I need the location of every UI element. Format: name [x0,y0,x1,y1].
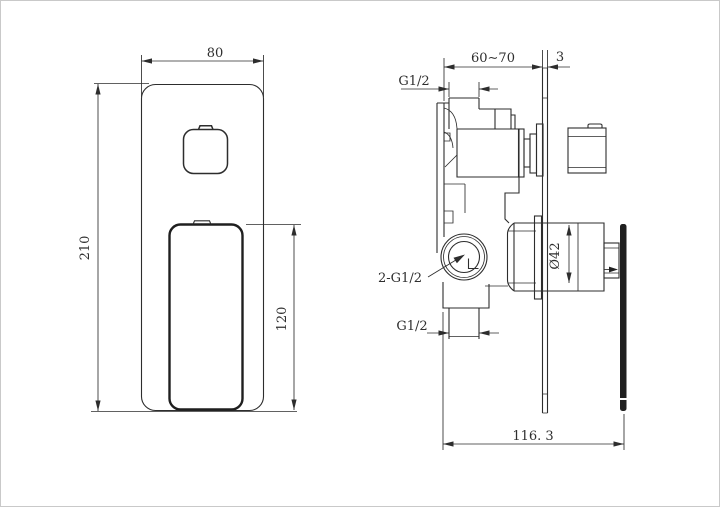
dim-cartridge-diameter-label: Ø42 [548,242,563,269]
dim-overall-depth: 116. 3 [443,312,624,450]
dim-handle-height: 120 [246,225,301,411]
dim-plate-thickness: 3 [543,50,571,70]
drawing-canvas: 80 210 120 [0,0,720,507]
diverter-button-front [184,126,228,174]
dim-wall-depth-range: 60∼70 [444,51,543,101]
valve-body-side [437,98,519,339]
dim-top-inlet: G1/2 [398,74,498,97]
dim-bottom-inlet-label: G1/2 [396,319,427,334]
set-screw-arrow-icon [609,267,618,273]
front-view: 80 210 120 [78,46,301,412]
handle-lever-side [619,224,628,411]
dim-plate-height-label: 210 [78,236,93,261]
dim-plate-width-label: 80 [207,46,224,61]
dim-overall-depth-label: 116. 3 [512,429,553,444]
diverter-button-side [519,124,607,177]
label-outlet-thread: 2-G1/2 [378,255,465,287]
dim-wall-depth-range-label: 60∼70 [471,51,515,66]
dim-plate-width: 80 [142,46,264,97]
side-view: 60∼70 3 G1/2 2-G1/2 G1/2 [378,50,627,450]
technical-drawing: 80 210 120 [1,1,719,506]
handle-front [170,221,243,410]
dim-handle-height-label: 120 [275,307,290,332]
dim-plate-height: 210 [78,84,297,412]
dim-bottom-inlet: G1/2 [396,319,499,336]
dim-cartridge-diameter: Ø42 [548,225,572,283]
dim-top-inlet-label: G1/2 [398,74,429,89]
label-outlet-thread-text: 2-G1/2 [378,271,422,286]
cartridge-side [508,216,620,299]
outlet-port-circle [441,234,487,280]
dim-plate-thickness-label: 3 [556,50,564,65]
wall-plate-side [543,68,548,413]
escutcheon-plate-front [142,85,264,411]
